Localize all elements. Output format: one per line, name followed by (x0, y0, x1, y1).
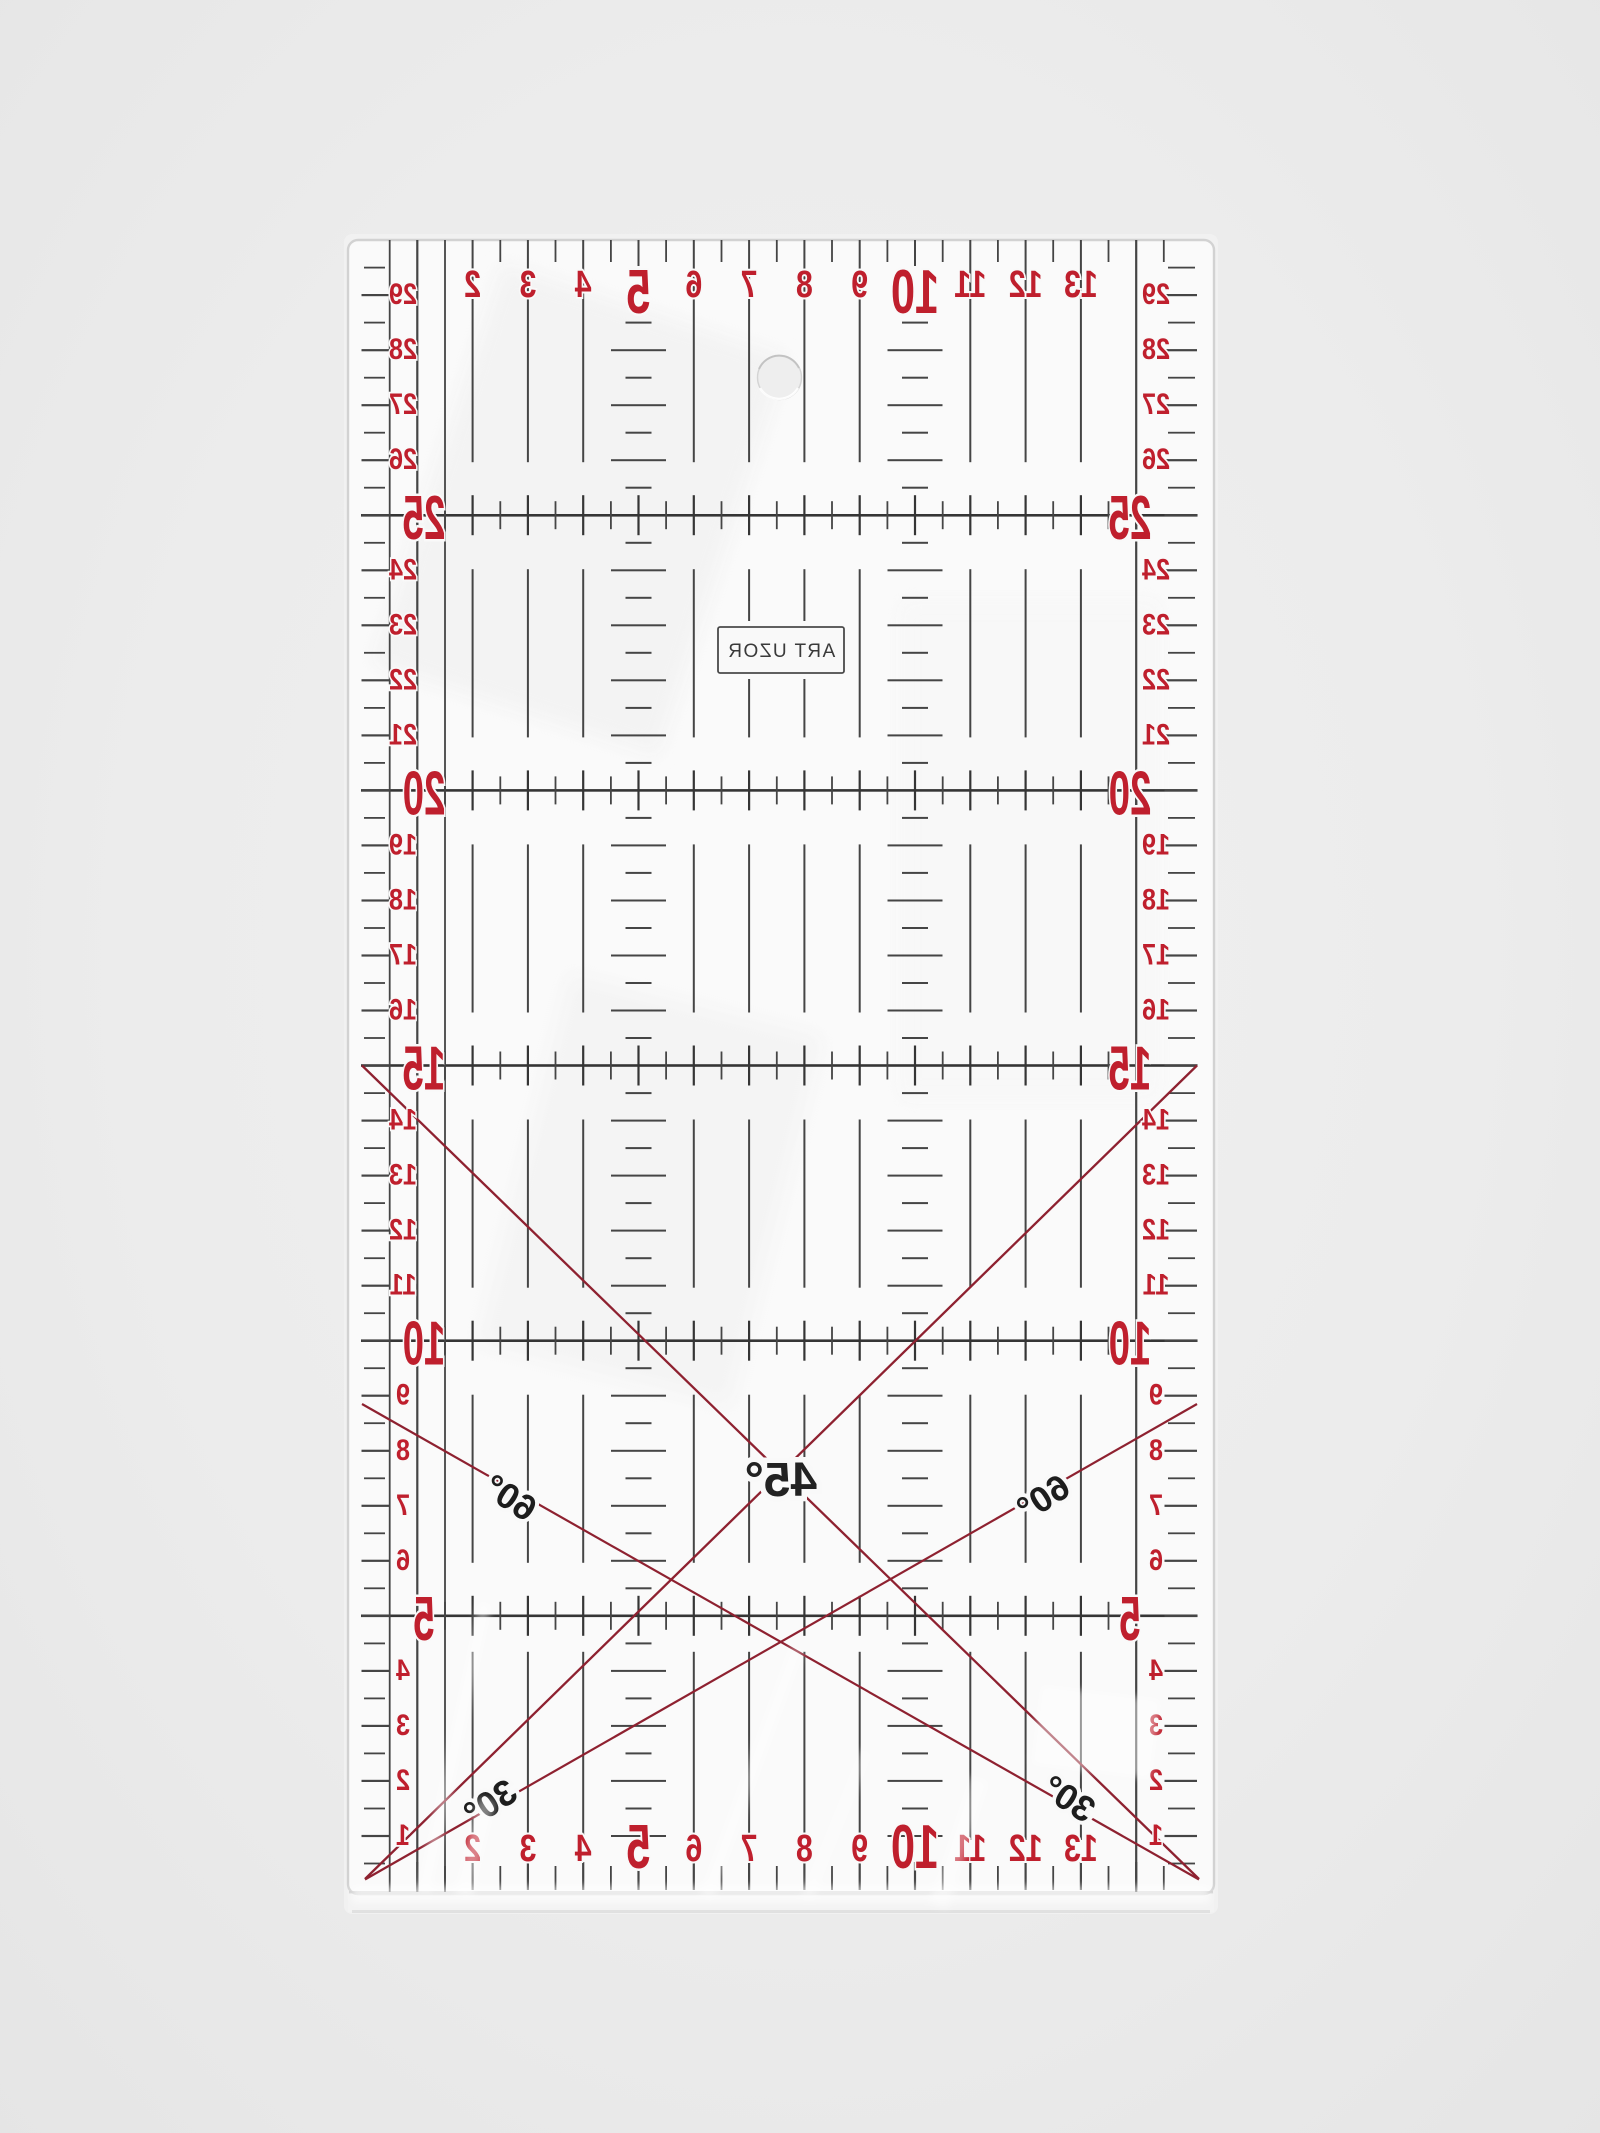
svg-text:12: 12 (1009, 264, 1043, 306)
svg-text:27: 27 (1142, 387, 1170, 421)
svg-text:8: 8 (796, 1828, 813, 1870)
svg-text:6: 6 (685, 1828, 702, 1870)
svg-text:14: 14 (388, 1103, 417, 1137)
svg-text:45°: 45° (745, 1454, 818, 1507)
svg-text:9: 9 (396, 1378, 410, 1412)
svg-text:2: 2 (464, 264, 481, 306)
svg-text:12: 12 (389, 1213, 417, 1247)
svg-text:14: 14 (1141, 1103, 1170, 1137)
svg-text:25: 25 (1109, 483, 1152, 553)
svg-text:12: 12 (1142, 1213, 1170, 1247)
svg-text:24: 24 (388, 552, 417, 586)
svg-text:9: 9 (851, 1828, 868, 1870)
svg-text:17: 17 (389, 937, 417, 971)
svg-text:29: 29 (1142, 277, 1170, 311)
svg-text:ART UZOR: ART UZOR (727, 641, 835, 662)
svg-text:7: 7 (741, 264, 758, 306)
svg-text:16: 16 (1142, 992, 1170, 1026)
svg-text:21: 21 (389, 717, 417, 751)
svg-text:23: 23 (389, 607, 417, 641)
svg-text:4: 4 (575, 264, 592, 306)
svg-text:18: 18 (1142, 882, 1170, 916)
svg-text:5: 5 (626, 1814, 650, 1882)
svg-text:9: 9 (1149, 1378, 1163, 1412)
svg-text:10: 10 (891, 1814, 939, 1882)
svg-text:11: 11 (390, 1268, 417, 1302)
svg-text:11: 11 (954, 264, 986, 306)
svg-text:5: 5 (1119, 1583, 1140, 1653)
svg-text:15: 15 (403, 1033, 446, 1103)
svg-text:24: 24 (1141, 552, 1170, 586)
svg-text:1: 1 (396, 1818, 410, 1852)
svg-text:7: 7 (396, 1488, 410, 1522)
svg-text:8: 8 (796, 264, 813, 306)
svg-text:25: 25 (403, 483, 446, 553)
svg-text:11: 11 (1143, 1268, 1170, 1302)
svg-text:10: 10 (891, 259, 939, 327)
svg-text:5: 5 (626, 259, 650, 327)
svg-text:8: 8 (396, 1433, 410, 1467)
svg-text:10: 10 (1109, 1308, 1152, 1378)
svg-text:7: 7 (1149, 1488, 1163, 1522)
svg-text:3: 3 (519, 264, 536, 306)
svg-text:27: 27 (389, 387, 417, 421)
svg-text:10: 10 (403, 1308, 446, 1378)
svg-text:4: 4 (395, 1653, 410, 1687)
svg-text:3: 3 (519, 1828, 536, 1870)
svg-text:17: 17 (1142, 937, 1170, 971)
svg-text:13: 13 (1064, 264, 1098, 306)
svg-text:21: 21 (1142, 717, 1170, 751)
svg-text:20: 20 (403, 758, 446, 828)
svg-text:3: 3 (396, 1708, 410, 1742)
svg-text:19: 19 (1142, 827, 1170, 861)
svg-text:2: 2 (396, 1763, 410, 1797)
svg-text:13: 13 (389, 1158, 417, 1192)
svg-text:23: 23 (1142, 607, 1170, 641)
svg-text:5: 5 (413, 1583, 434, 1653)
svg-text:6: 6 (1149, 1543, 1163, 1577)
svg-text:4: 4 (575, 1828, 592, 1870)
svg-text:22: 22 (1142, 662, 1170, 696)
svg-text:12: 12 (1009, 1828, 1043, 1870)
svg-text:16: 16 (389, 992, 417, 1026)
svg-text:6: 6 (396, 1543, 410, 1577)
svg-text:22: 22 (389, 662, 417, 696)
svg-text:26: 26 (389, 442, 417, 476)
svg-text:28: 28 (389, 332, 417, 366)
svg-text:8: 8 (1149, 1433, 1163, 1467)
svg-text:9: 9 (851, 264, 868, 306)
svg-text:7: 7 (741, 1828, 758, 1870)
svg-text:28: 28 (1142, 332, 1170, 366)
svg-text:26: 26 (1142, 442, 1170, 476)
svg-text:6: 6 (685, 264, 702, 306)
svg-text:4: 4 (1148, 1653, 1163, 1687)
svg-text:18: 18 (389, 882, 417, 916)
svg-text:19: 19 (389, 827, 417, 861)
svg-text:15: 15 (1109, 1033, 1152, 1103)
svg-text:13: 13 (1064, 1828, 1098, 1870)
svg-text:1: 1 (1149, 1818, 1163, 1852)
svg-text:29: 29 (389, 277, 417, 311)
svg-text:20: 20 (1109, 758, 1152, 828)
svg-text:13: 13 (1142, 1158, 1170, 1192)
